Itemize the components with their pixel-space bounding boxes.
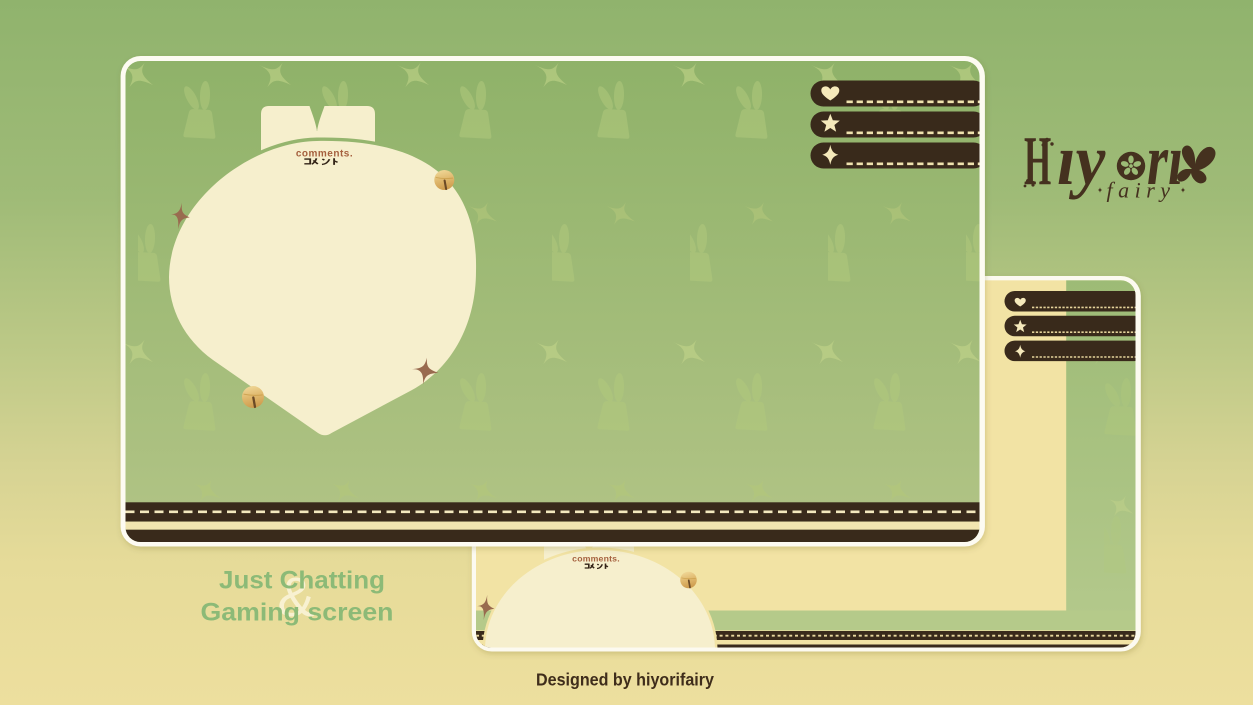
svg-text:comments.: comments. [296, 148, 353, 159]
svg-text:Just Chatting: Just Chatting [219, 567, 385, 595]
svg-text:H: H [1024, 122, 1051, 199]
svg-text:Gaming screen: Gaming screen [201, 598, 394, 626]
svg-text:fairy: fairy [1106, 178, 1175, 203]
svg-text:comments.: comments. [572, 554, 620, 564]
svg-text:Designed by hiyorifairy: Designed by hiyorifairy [536, 670, 714, 690]
svg-text:ıy: ıy [1057, 121, 1106, 201]
